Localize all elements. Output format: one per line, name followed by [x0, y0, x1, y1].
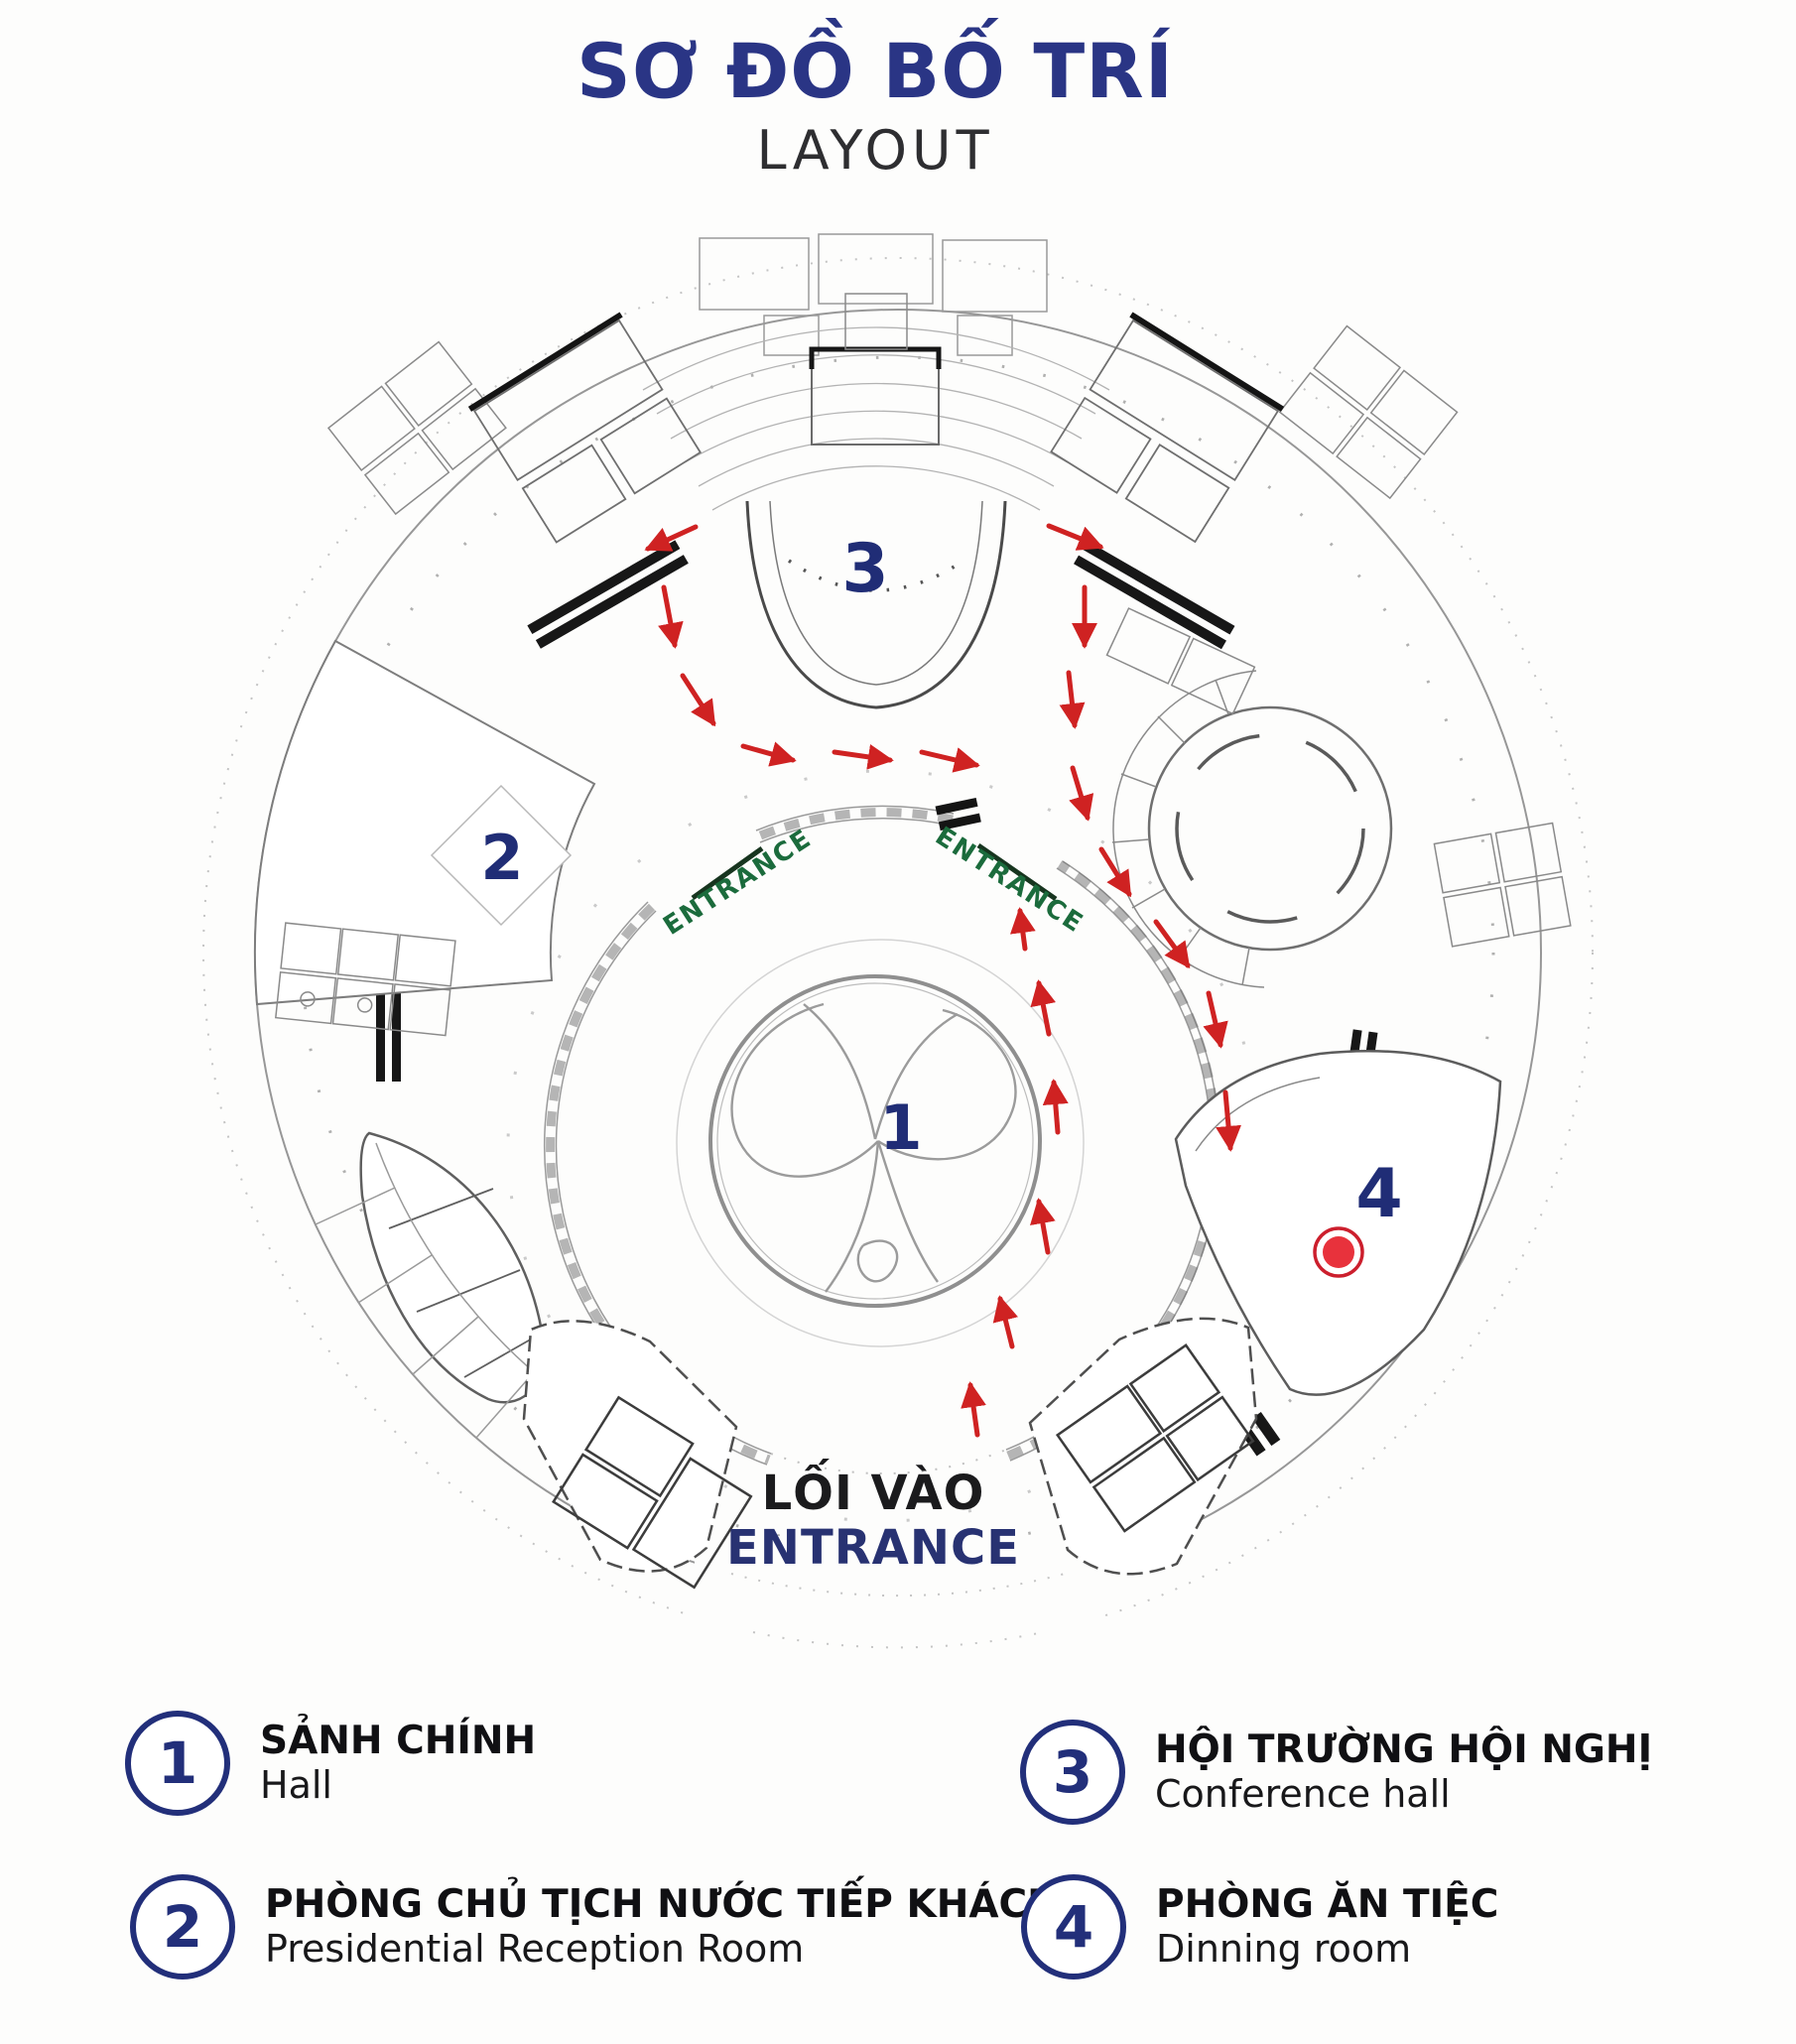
top-rooms [700, 234, 1047, 355]
page-header: SƠ ĐỒ BỐ TRÍ LAYOUT [0, 30, 1750, 182]
marker-reception: 2 [480, 822, 523, 894]
page-subtitle: LAYOUT [0, 119, 1750, 182]
legend-subtitle-2: Presidential Reception Room [265, 1928, 1060, 1972]
legend-badge-1: 1 [125, 1711, 230, 1816]
route-arrows [648, 526, 1230, 1435]
conference-hall-shape [643, 294, 1109, 707]
marker-hall: 1 [879, 1091, 922, 1164]
legend-title-1: SẢNH CHÍNH [260, 1720, 536, 1764]
main-entrance-vi: LỐI VÀO [762, 1459, 985, 1521]
legend-title-2: PHÒNG CHỦ TỊCH NƯỚC TIẾP KHÁCH [265, 1883, 1060, 1928]
main-entrance-en: ENTRANCE [726, 1520, 1020, 1576]
page-title: SƠ ĐỒ BỐ TRÍ [0, 30, 1750, 113]
legend-title-3: HỘI TRƯỜNG HỘI NGHỊ [1155, 1728, 1652, 1773]
legend-badge-4: 4 [1021, 1874, 1126, 1980]
legend-item-hall: 1 SẢNH CHÍNH Hall [125, 1711, 536, 1816]
upper-left-rooms [328, 342, 506, 514]
legend-item-dining: 4 PHÒNG ĂN TIỆC Dinning room [1021, 1874, 1498, 1980]
location-dot [1315, 1228, 1362, 1276]
conference-side-block-right [1047, 315, 1282, 544]
inner-entrances: ENTRANCE ENTRANCE [658, 822, 1089, 942]
marker-conference: 3 [841, 530, 888, 608]
entrance-label-left: ENTRANCE [658, 824, 818, 942]
legend-item-conference: 3 HỘI TRƯỜNG HỘI NGHỊ Conference hall [1020, 1720, 1652, 1825]
legend-badge-2: 2 [130, 1874, 235, 1980]
legend-subtitle-4: Dinning room [1156, 1928, 1498, 1972]
marker-dining: 4 [1355, 1155, 1402, 1233]
legend-badge-3: 3 [1020, 1720, 1125, 1825]
round-room-shape [1107, 608, 1391, 987]
entrance-label-right: ENTRANCE [930, 822, 1090, 940]
garden-swirls [732, 1004, 1016, 1292]
legend-subtitle-3: Conference hall [1155, 1773, 1652, 1817]
right-service-rooms [1434, 823, 1570, 946]
main-entrance-label: LỐI VÀO ENTRANCE [726, 1459, 1020, 1576]
upper-right-rooms [1280, 326, 1458, 498]
legend-item-reception: 2 PHÒNG CHỦ TỊCH NƯỚC TIẾP KHÁCH Preside… [130, 1874, 1060, 1980]
reception-room-shape [255, 641, 594, 1004]
layout-page: SƠ ĐỒ BỐ TRÍ LAYOUT [0, 0, 1796, 2044]
bottom-right-wing [1030, 1319, 1256, 1574]
legend-title-4: PHÒNG ĂN TIỆC [1156, 1883, 1498, 1928]
legend-subtitle-1: Hall [260, 1764, 536, 1808]
